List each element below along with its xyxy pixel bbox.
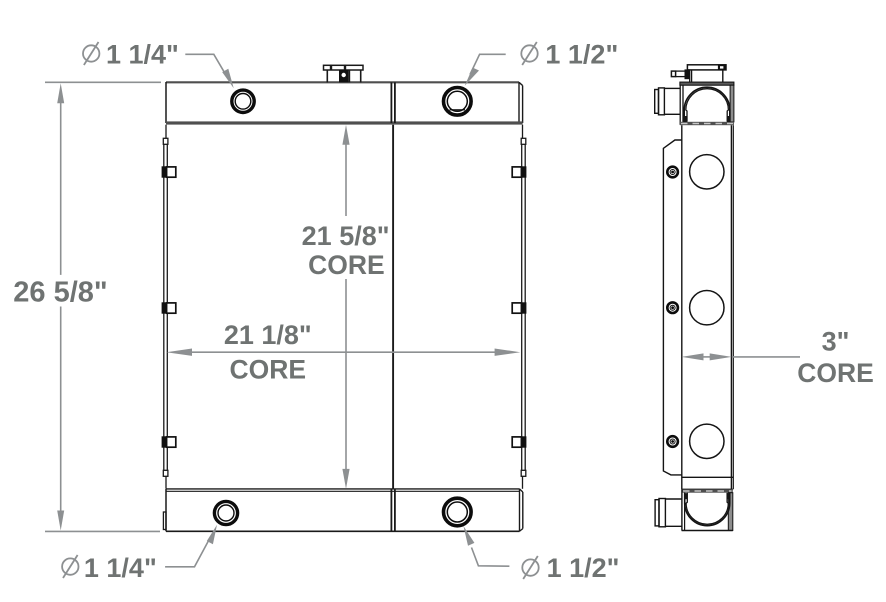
svg-text:21 5/8": 21 5/8" (302, 221, 390, 251)
svg-text:1 1/4": 1 1/4" (84, 553, 157, 583)
svg-text:26 5/8": 26 5/8" (13, 277, 107, 309)
svg-text:1 1/2": 1 1/2" (545, 40, 618, 70)
svg-text:3": 3" (822, 326, 850, 356)
svg-text:CORE: CORE (230, 355, 307, 385)
svg-text:CORE: CORE (797, 358, 874, 388)
svg-text:1 1/2": 1 1/2" (547, 553, 620, 583)
svg-text:1 1/4": 1 1/4" (106, 40, 179, 70)
svg-text:21 1/8": 21 1/8" (224, 320, 312, 350)
svg-text:CORE: CORE (308, 250, 385, 280)
